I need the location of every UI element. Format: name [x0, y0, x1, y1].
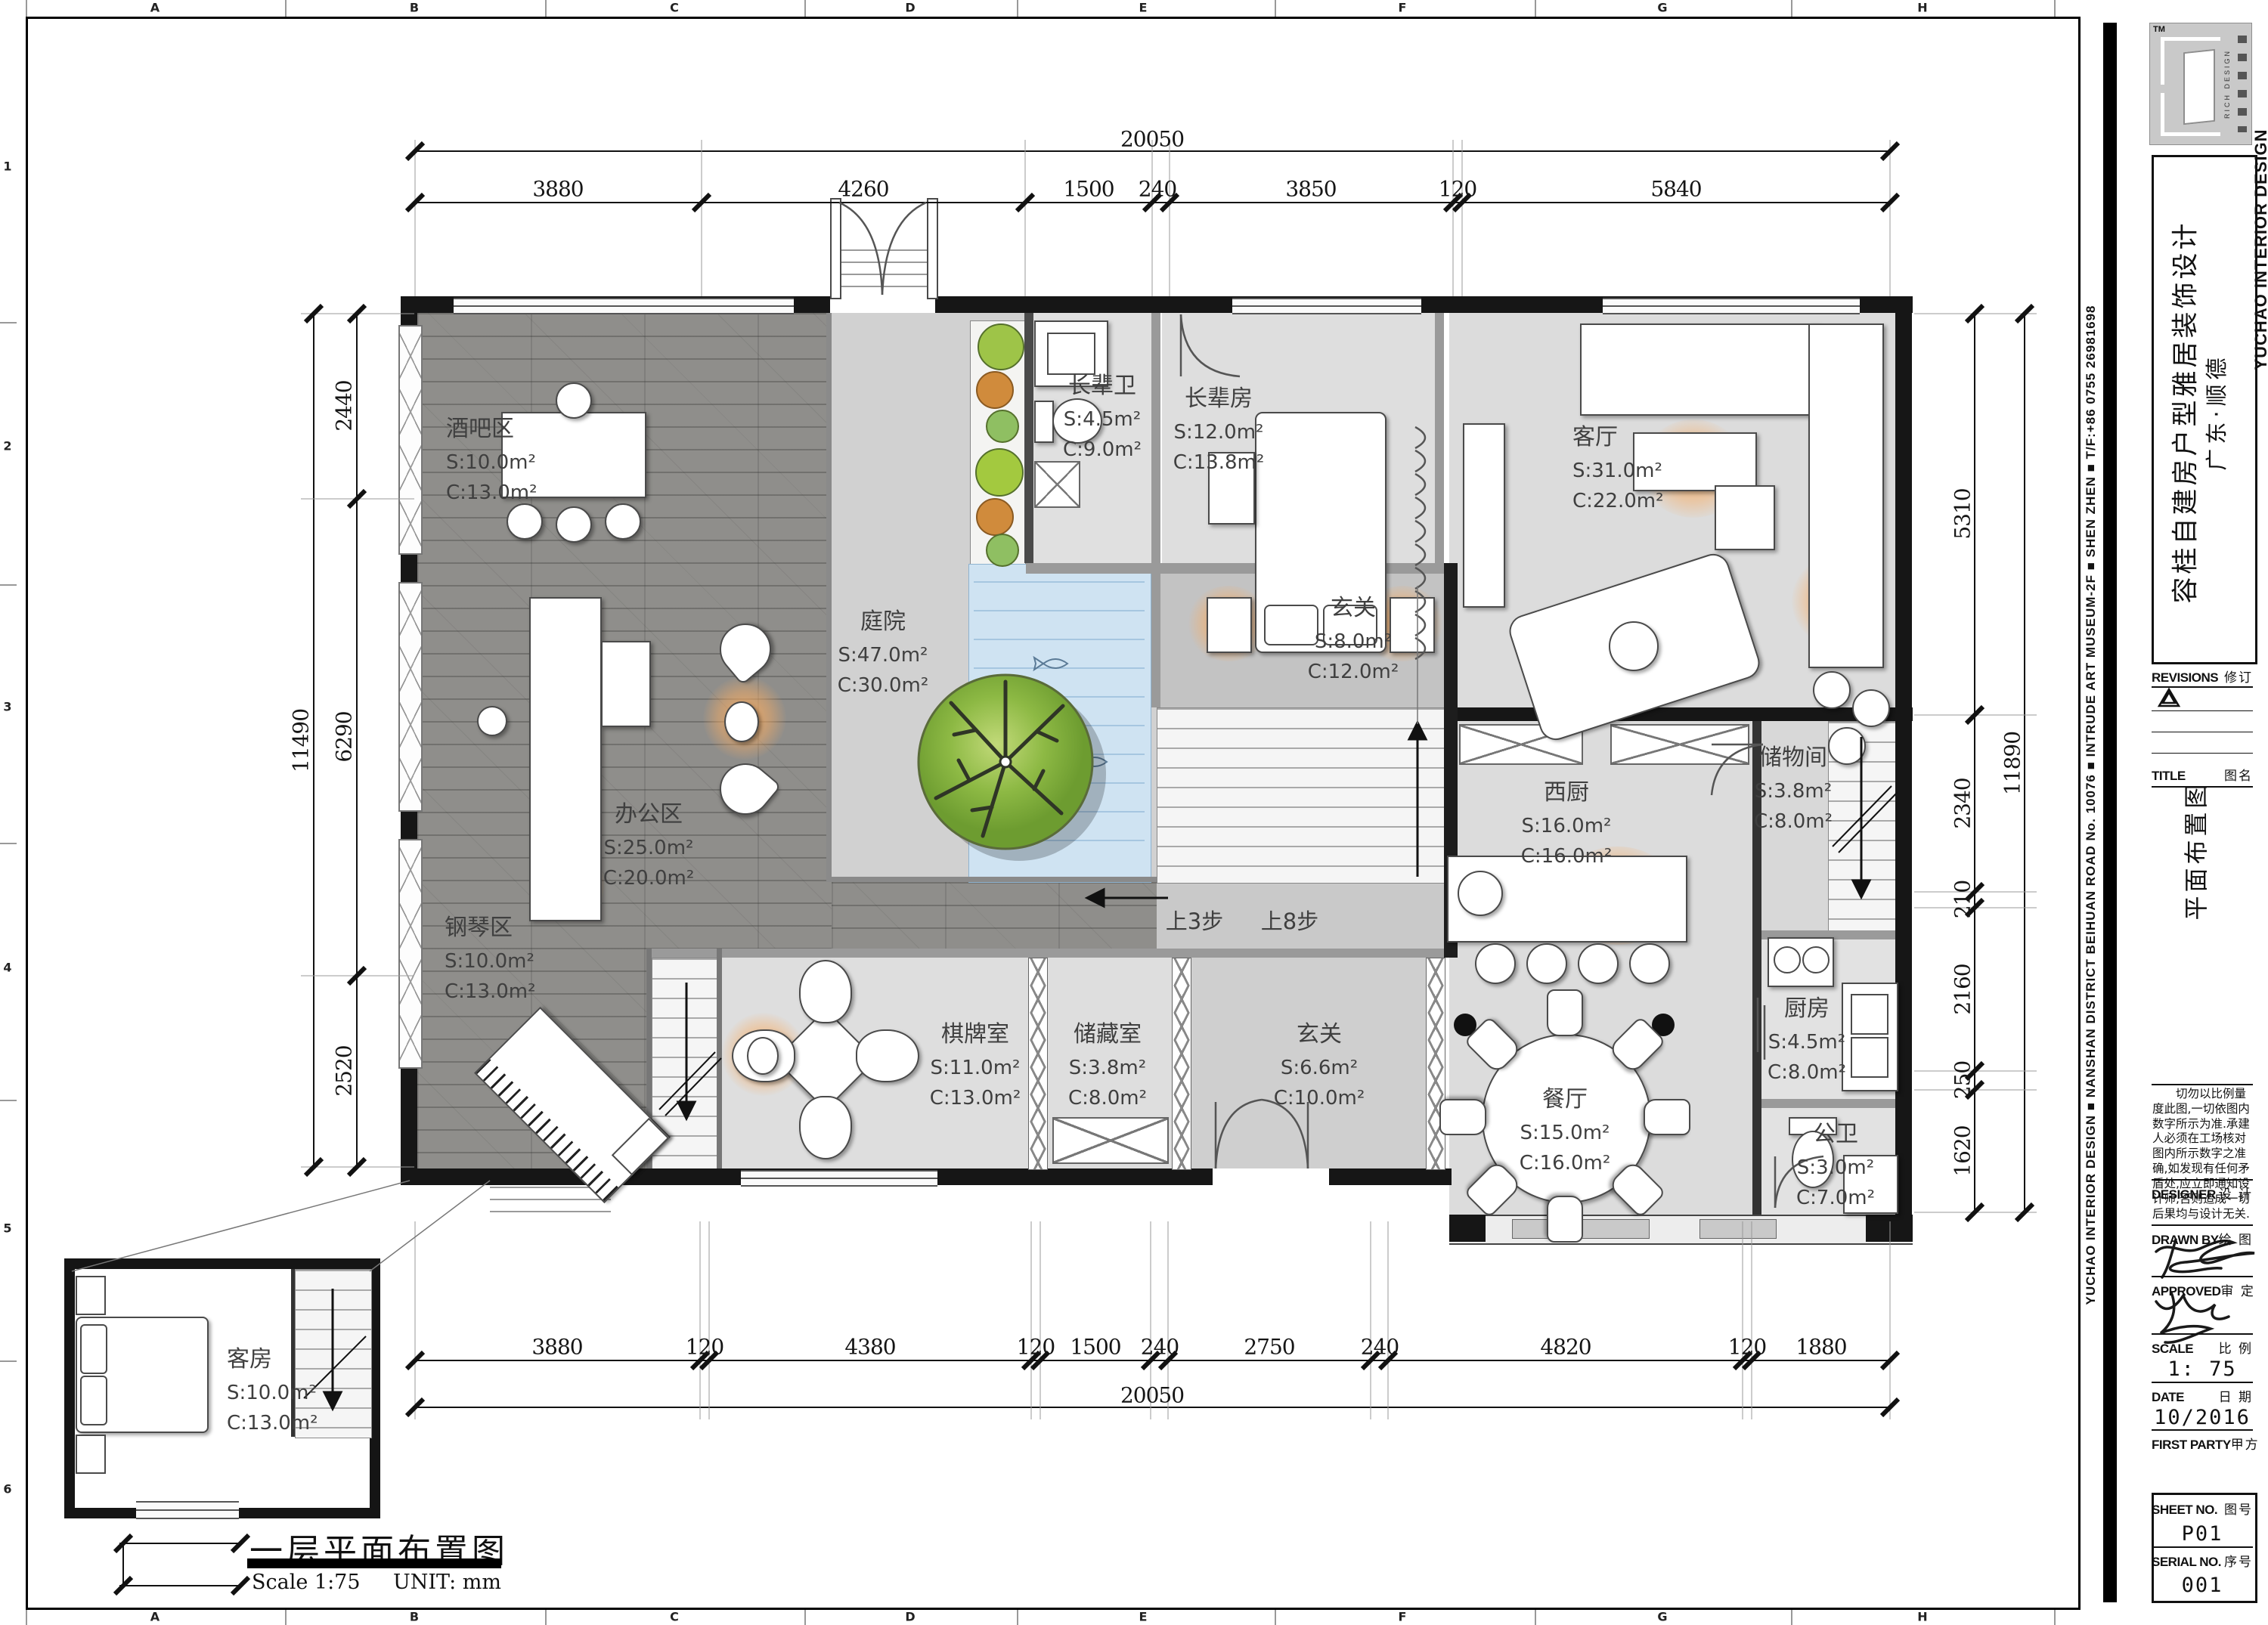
dim: 2340 [1950, 778, 1975, 828]
wall-wc-top [1761, 1099, 1895, 1108]
room-label-piano: 钢琴区S:10.0m²C:13.0m² [445, 911, 536, 1007]
toilet-tank [1034, 401, 1054, 443]
sofa-top [1580, 323, 1819, 416]
dim: 5310 [1950, 488, 1975, 539]
room-label-storage-room: 储物间S:3.8m²C:8.0m² [1754, 741, 1833, 837]
designer-row: DESIGNER设 计 [2152, 1184, 2253, 1202]
pond [968, 564, 1151, 883]
grid-letter: D [905, 1610, 915, 1624]
terrace-window-2 [1699, 1219, 1777, 1239]
dim: 1500 [1070, 1335, 1120, 1360]
scale-row: SCALE比 例 [2152, 1338, 2253, 1357]
grid-letter: F [1399, 1610, 1407, 1624]
dim: 3850 [1285, 177, 1336, 202]
scale-value: 1: 75 [2152, 1357, 2253, 1381]
window-top-bed [1232, 298, 1421, 314]
terrace-block-l [1449, 1215, 1486, 1242]
cabinet-bath [1034, 461, 1080, 508]
chess-chair [799, 960, 852, 1023]
window-top-bar [454, 298, 794, 314]
dim: 210 [1950, 881, 1975, 918]
tv-console [1463, 423, 1505, 608]
chess-chair [799, 1096, 852, 1159]
grid-letter: E [1139, 1610, 1148, 1624]
dim: 4820 [1540, 1335, 1591, 1360]
wall-stair-small-r [717, 949, 722, 1168]
guest-window [136, 1501, 239, 1519]
dim: 250 [1950, 1061, 1975, 1099]
stool [1813, 671, 1851, 709]
dim: 1620 [1950, 1125, 1975, 1176]
grid-number: 2 [3, 439, 11, 453]
guest-nightstand [76, 1276, 106, 1315]
plan-title-bar [247, 1558, 501, 1568]
date-value: 10/2016 [2152, 1406, 2253, 1429]
logo-tm: TM [2153, 25, 2165, 34]
dim: 4260 [838, 177, 888, 202]
floor-lamp [747, 1037, 779, 1075]
stair-label-up3: 上3步 [1166, 904, 1223, 936]
nightstand [1207, 597, 1252, 653]
island-stool [1526, 943, 1567, 984]
grid-number: 3 [3, 700, 11, 714]
grid-letter: B [410, 1610, 419, 1624]
plan-title-unit: UNIT: mm [393, 1571, 501, 1594]
cabinet-westkitchen-2 [1610, 724, 1749, 765]
column-chess-right [1028, 958, 1048, 1170]
logo-rich-design: RICH DESIGN [2223, 49, 2231, 119]
approved-signature [2156, 1292, 2229, 1342]
wall-court-left [826, 313, 832, 882]
room-label-west-kitchen: 西厨S:16.0m²C:16.0m² [1521, 775, 1613, 871]
dim: 1880 [1795, 1335, 1846, 1360]
sheet-no-row: SHEET NO.图号 [2152, 1499, 2253, 1518]
window-left-3 [398, 839, 423, 1069]
dining-chair [1644, 1099, 1690, 1135]
room-label-living: 客厅S:31.0m²C:22.0m² [1572, 420, 1664, 516]
room-label-kitchen: 厨房S:4.5m²C:8.0m² [1768, 992, 1846, 1088]
burner [1802, 946, 1830, 973]
entry-porch-steps [830, 249, 935, 295]
logo-box: TM RICH DESIGN [2149, 23, 2252, 145]
dim: 2160 [1950, 964, 1975, 1014]
office-desk [529, 597, 602, 921]
grid-letter: C [670, 1610, 679, 1624]
wall-living-kitchen [1449, 707, 1913, 721]
dim: 240 [1361, 1335, 1399, 1360]
dining-chair [1547, 1196, 1583, 1243]
wall-chess-top [652, 949, 1444, 958]
island-stool [1629, 943, 1670, 984]
first-party-row: FIRST PARTY甲方 [2152, 1434, 2253, 1453]
guest-pillow [80, 1324, 107, 1374]
grid-letter: G [1657, 1, 1667, 15]
revisions-row: REVISIONS修订 [2152, 667, 2253, 686]
espresso-machine [1458, 871, 1503, 916]
room-label-bar: 酒吧区S:10.0m²C:13.0m² [446, 412, 538, 508]
dim-right-total: 11890 [2000, 732, 2025, 795]
wall-right [1895, 296, 1912, 1242]
stool [1828, 727, 1866, 765]
stool [1852, 689, 1890, 727]
grid-letter: B [410, 1, 419, 15]
dim: 3880 [532, 177, 583, 202]
plant-bed [970, 320, 1026, 565]
dim: 120 [1439, 177, 1476, 202]
dim: 120 [1017, 1335, 1055, 1360]
room-label-elder-bath: 长辈卫S:4.5m²C:9.0m² [1063, 369, 1142, 465]
grid-number: 5 [3, 1221, 11, 1236]
wall-bath-left [1024, 313, 1033, 563]
plan-title-scale: Scale 1:75 [252, 1571, 361, 1594]
room-label-foyer-upper: 玄关S:8.0m²C:12.0m² [1308, 591, 1399, 687]
wall-bed-right [1435, 313, 1444, 563]
revision-triangle-icon [2159, 689, 2179, 706]
island-stool [1475, 943, 1516, 984]
kitchen-sink [1851, 994, 1888, 1035]
address-strip: YUCHAO INTERIOR DESIGN ■ NANSHAN DISTRIC… [2084, 305, 2099, 1305]
round-lamp-table [724, 701, 759, 742]
dim: 4380 [844, 1335, 895, 1360]
grid-number: 1 [3, 159, 11, 174]
grid-number: 4 [3, 961, 11, 975]
grid-letter: A [150, 1, 160, 15]
dim: 2520 [332, 1045, 357, 1096]
dim: 3880 [531, 1335, 582, 1360]
grid-number: 6 [3, 1482, 11, 1497]
dim-bottom-total: 20050 [1120, 1383, 1184, 1408]
sofa-right [1808, 323, 1884, 668]
bar-stool [507, 503, 543, 540]
logo-beam [2183, 49, 2215, 125]
grid-letter: G [1657, 1610, 1667, 1624]
bar-stool [556, 382, 592, 419]
dim: 2440 [332, 380, 357, 431]
bar-stool [605, 503, 641, 540]
wall-foyer-upper-left [1151, 563, 1160, 707]
coffee-table-2 [1715, 485, 1775, 550]
dim: 5840 [1650, 177, 1701, 202]
dim: 120 [1728, 1335, 1766, 1360]
grid-letter: A [150, 1610, 160, 1624]
guest-nightstand [76, 1435, 106, 1474]
dim: 240 [1141, 1335, 1179, 1360]
dim: 6290 [332, 711, 357, 762]
window-left-2 [398, 582, 423, 812]
chess-chair [856, 1029, 919, 1082]
room-label-guest: 客房S:10.0m²C:13.0m² [227, 1342, 318, 1438]
wall-bath-bed [1151, 313, 1160, 563]
burner [1774, 946, 1801, 973]
date-row: DATE日 期 [2152, 1386, 2253, 1405]
column-storeroom-right [1172, 958, 1191, 1170]
wall-bottom-b [1329, 1168, 1452, 1185]
terrace-block-r [1866, 1215, 1913, 1242]
dim-left-total: 11490 [289, 709, 314, 772]
dining-chair [1439, 1099, 1486, 1135]
approved-row: APPROVED审 定 [2152, 1280, 2253, 1299]
project-location: 广东·顺德 [2199, 353, 2231, 470]
dim: 240 [1139, 177, 1176, 202]
project-title: 容桂自建房户型雅居装饰设计 [2164, 220, 2203, 603]
floor-corridor [832, 882, 1157, 958]
entry-door-leaf-left [830, 198, 841, 299]
grid-letter: F [1399, 1, 1407, 15]
room-label-wc: 公卫S:3.0m²C:7.0m² [1796, 1117, 1875, 1213]
window-top-living [1603, 298, 1860, 314]
room-label-chess: 棋牌室S:11.0m²C:13.0m² [930, 1017, 1021, 1113]
room-label-courtyard: 庭院S:47.0m²C:30.0m² [838, 605, 929, 701]
sheet-no-value: P01 [2152, 1522, 2253, 1546]
serial-no-value: 001 [2152, 1574, 2253, 1597]
serial-no-row: SERIAL NO.序号 [2152, 1551, 2253, 1570]
kitchen-sink [1851, 1037, 1888, 1078]
dim: 1500 [1063, 177, 1114, 202]
dining-chair [1547, 989, 1583, 1036]
guest-pillow [80, 1376, 107, 1425]
drawing-name: 平面布置图 [2177, 780, 2212, 920]
dim-top-total: 20050 [1120, 127, 1184, 152]
logo-glyph-block [2238, 36, 2247, 132]
island-stool [1578, 943, 1619, 984]
column-foyer-right [1426, 958, 1445, 1170]
room-label-office: 办公区S:25.0m²C:20.0m² [603, 797, 695, 893]
entry-door-leaf-right [927, 198, 938, 299]
stair-label-up8: 上8步 [1261, 904, 1318, 936]
dim: 2750 [1244, 1335, 1294, 1360]
floor-lamp [477, 706, 507, 736]
room-label-foyer-lower: 玄关S:6.6m²C:10.0m² [1274, 1017, 1365, 1113]
cabinet-storeroom [1052, 1117, 1169, 1164]
drawn-by-row: DRAWN BY绘 图 [2152, 1229, 2253, 1248]
wall-corridor-top [832, 877, 1157, 882]
grid-letter: H [1917, 1, 1927, 15]
grid-letter: E [1139, 1, 1148, 15]
office-side-table [601, 641, 651, 727]
grid-letter: H [1917, 1610, 1927, 1624]
panel-divider-bar [2103, 23, 2117, 1602]
window-bottom-chess [741, 1170, 937, 1187]
grid-letter: D [905, 1, 915, 15]
room-label-elder-room: 长辈房S:12.0m²C:13.8m² [1173, 382, 1265, 478]
round-side-table [1609, 621, 1659, 671]
window-left-1 [398, 325, 423, 555]
grid-letter: C [670, 1, 679, 15]
bar-stool [556, 506, 592, 543]
drawing-sheet: 酒吧区S:10.0m²C:13.0m² 办公区S:25.0m²C:20.0m² … [0, 0, 2268, 1625]
room-label-dining: 餐厅S:15.0m²C:16.0m² [1520, 1082, 1611, 1178]
stairs-center [1157, 707, 1445, 884]
room-label-storeroom: 储藏室S:3.8m²C:8.0m² [1068, 1017, 1147, 1113]
dim: 120 [686, 1335, 723, 1360]
